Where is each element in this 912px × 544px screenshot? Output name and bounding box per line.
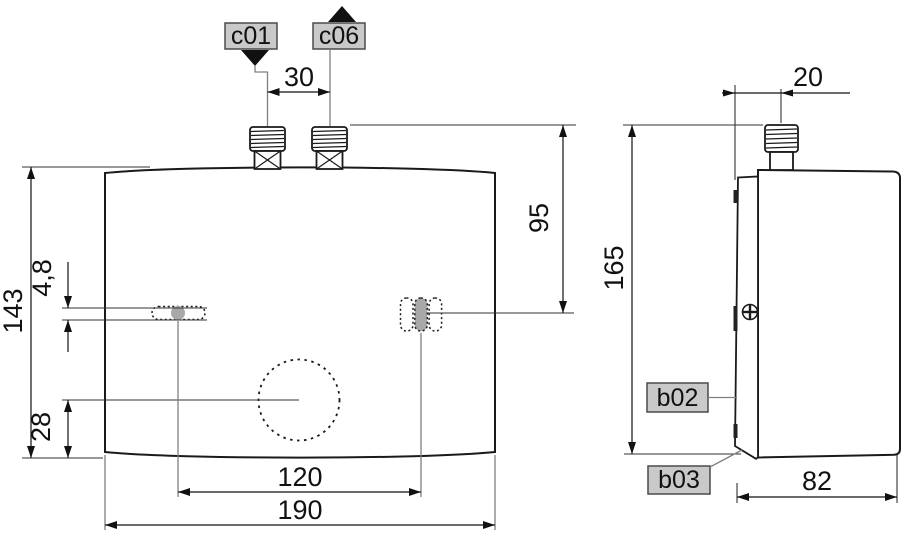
up-diamond-icon (328, 6, 356, 22)
label-b03-text: b03 (658, 466, 700, 494)
arrow-right-icon (723, 90, 735, 97)
cover-screw-icon (743, 305, 758, 320)
label-c06-text: c06 (319, 22, 359, 50)
mounting-slot-right-group (401, 298, 442, 331)
dim-82-text: 82 (802, 466, 832, 496)
dimension-drawing: c01 c06 30 143 4,8 (0, 0, 912, 544)
label-c01-text: c01 (231, 22, 271, 50)
dim-28-text: 28 (26, 412, 56, 442)
side-body-outline (758, 170, 900, 458)
arrow-left-icon (781, 90, 793, 97)
part-label-b02: b02 (647, 383, 737, 412)
dim-120-text: 120 (277, 462, 322, 492)
leader-c01 (255, 66, 268, 126)
dim-4-8-text: 4,8 (27, 259, 57, 297)
dim-pipe-spacing-30: 30 (268, 62, 331, 92)
connection-label-c06: c06 (313, 6, 365, 126)
dim-depth-82: 82 (737, 455, 897, 503)
dim-95-text: 95 (524, 203, 554, 233)
pipe-neck (770, 152, 793, 170)
dim-190-text: 190 (277, 495, 322, 525)
label-b02-text: b02 (657, 384, 699, 412)
dim-30-text: 30 (284, 62, 314, 92)
dim-20-text: 20 (793, 62, 823, 92)
front-view: c01 c06 30 143 4,8 (0, 6, 576, 530)
part-label-b03: b03 (648, 450, 742, 494)
connection-label-c01: c01 (225, 22, 277, 126)
leader-b03 (710, 450, 742, 467)
dim-143-text: 143 (0, 288, 28, 333)
hot-water-connection-pipe (312, 127, 347, 169)
technical-drawing-page: c01 c06 30 143 4,8 (0, 0, 912, 544)
down-diamond-icon (241, 50, 269, 66)
mounting-hole-right (415, 298, 428, 331)
side-view: 20 165 b02 b03 82 (599, 62, 900, 503)
side-connection-pipe (765, 125, 798, 170)
cold-water-connection-pipe (250, 127, 285, 169)
dim-circle-offset-28: 28 (26, 400, 68, 458)
dim-165-text: 165 (599, 245, 629, 290)
